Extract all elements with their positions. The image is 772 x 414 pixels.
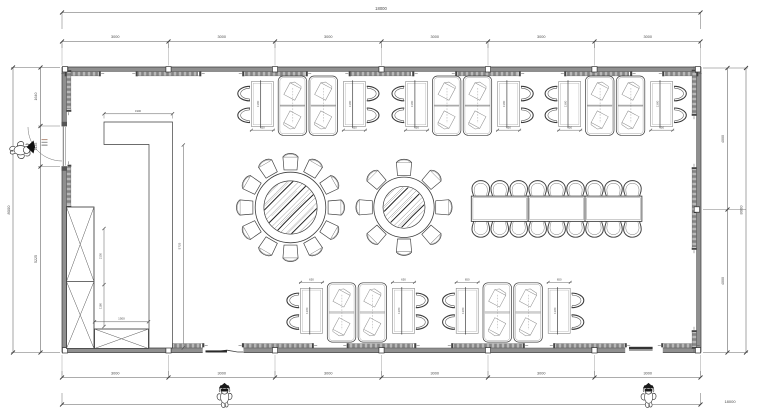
svg-text:3000: 3000 xyxy=(431,35,439,39)
svg-text:1500: 1500 xyxy=(118,317,125,321)
svg-text:3000: 3000 xyxy=(324,372,332,376)
svg-text:3000: 3000 xyxy=(644,35,652,39)
svg-text:3000: 3000 xyxy=(644,372,652,376)
svg-text:3000: 3000 xyxy=(324,35,332,39)
svg-text:650: 650 xyxy=(506,126,511,130)
svg-text:5225: 5225 xyxy=(34,255,38,263)
svg-text:3000: 3000 xyxy=(537,372,545,376)
svg-text:4000: 4000 xyxy=(721,135,725,143)
svg-text:3000: 3000 xyxy=(431,372,439,376)
svg-text:1180: 1180 xyxy=(98,303,102,309)
svg-text:8000: 8000 xyxy=(6,205,11,215)
svg-text:650: 650 xyxy=(557,278,562,282)
svg-text:3000: 3000 xyxy=(111,372,119,376)
svg-text:8000: 8000 xyxy=(739,205,744,215)
svg-text:650: 650 xyxy=(414,126,419,130)
svg-text:650: 650 xyxy=(465,278,470,282)
svg-text:650: 650 xyxy=(567,126,572,130)
svg-text:650: 650 xyxy=(659,126,664,130)
svg-text:3000: 3000 xyxy=(537,35,545,39)
svg-text:650: 650 xyxy=(260,126,265,130)
svg-text:2150: 2150 xyxy=(98,252,102,259)
svg-text:18000: 18000 xyxy=(375,6,387,11)
svg-text:650: 650 xyxy=(401,278,406,282)
svg-text:650: 650 xyxy=(309,278,314,282)
svg-text:5725: 5725 xyxy=(178,242,182,249)
svg-text:3000: 3000 xyxy=(218,372,226,376)
svg-text:3000: 3000 xyxy=(218,35,226,39)
svg-text:18000: 18000 xyxy=(724,399,736,404)
svg-text:3000: 3000 xyxy=(111,35,119,39)
svg-text:4000: 4000 xyxy=(721,277,725,285)
svg-text:650: 650 xyxy=(352,126,357,130)
svg-text:1640: 1640 xyxy=(34,93,38,101)
svg-text:1900: 1900 xyxy=(135,109,141,113)
